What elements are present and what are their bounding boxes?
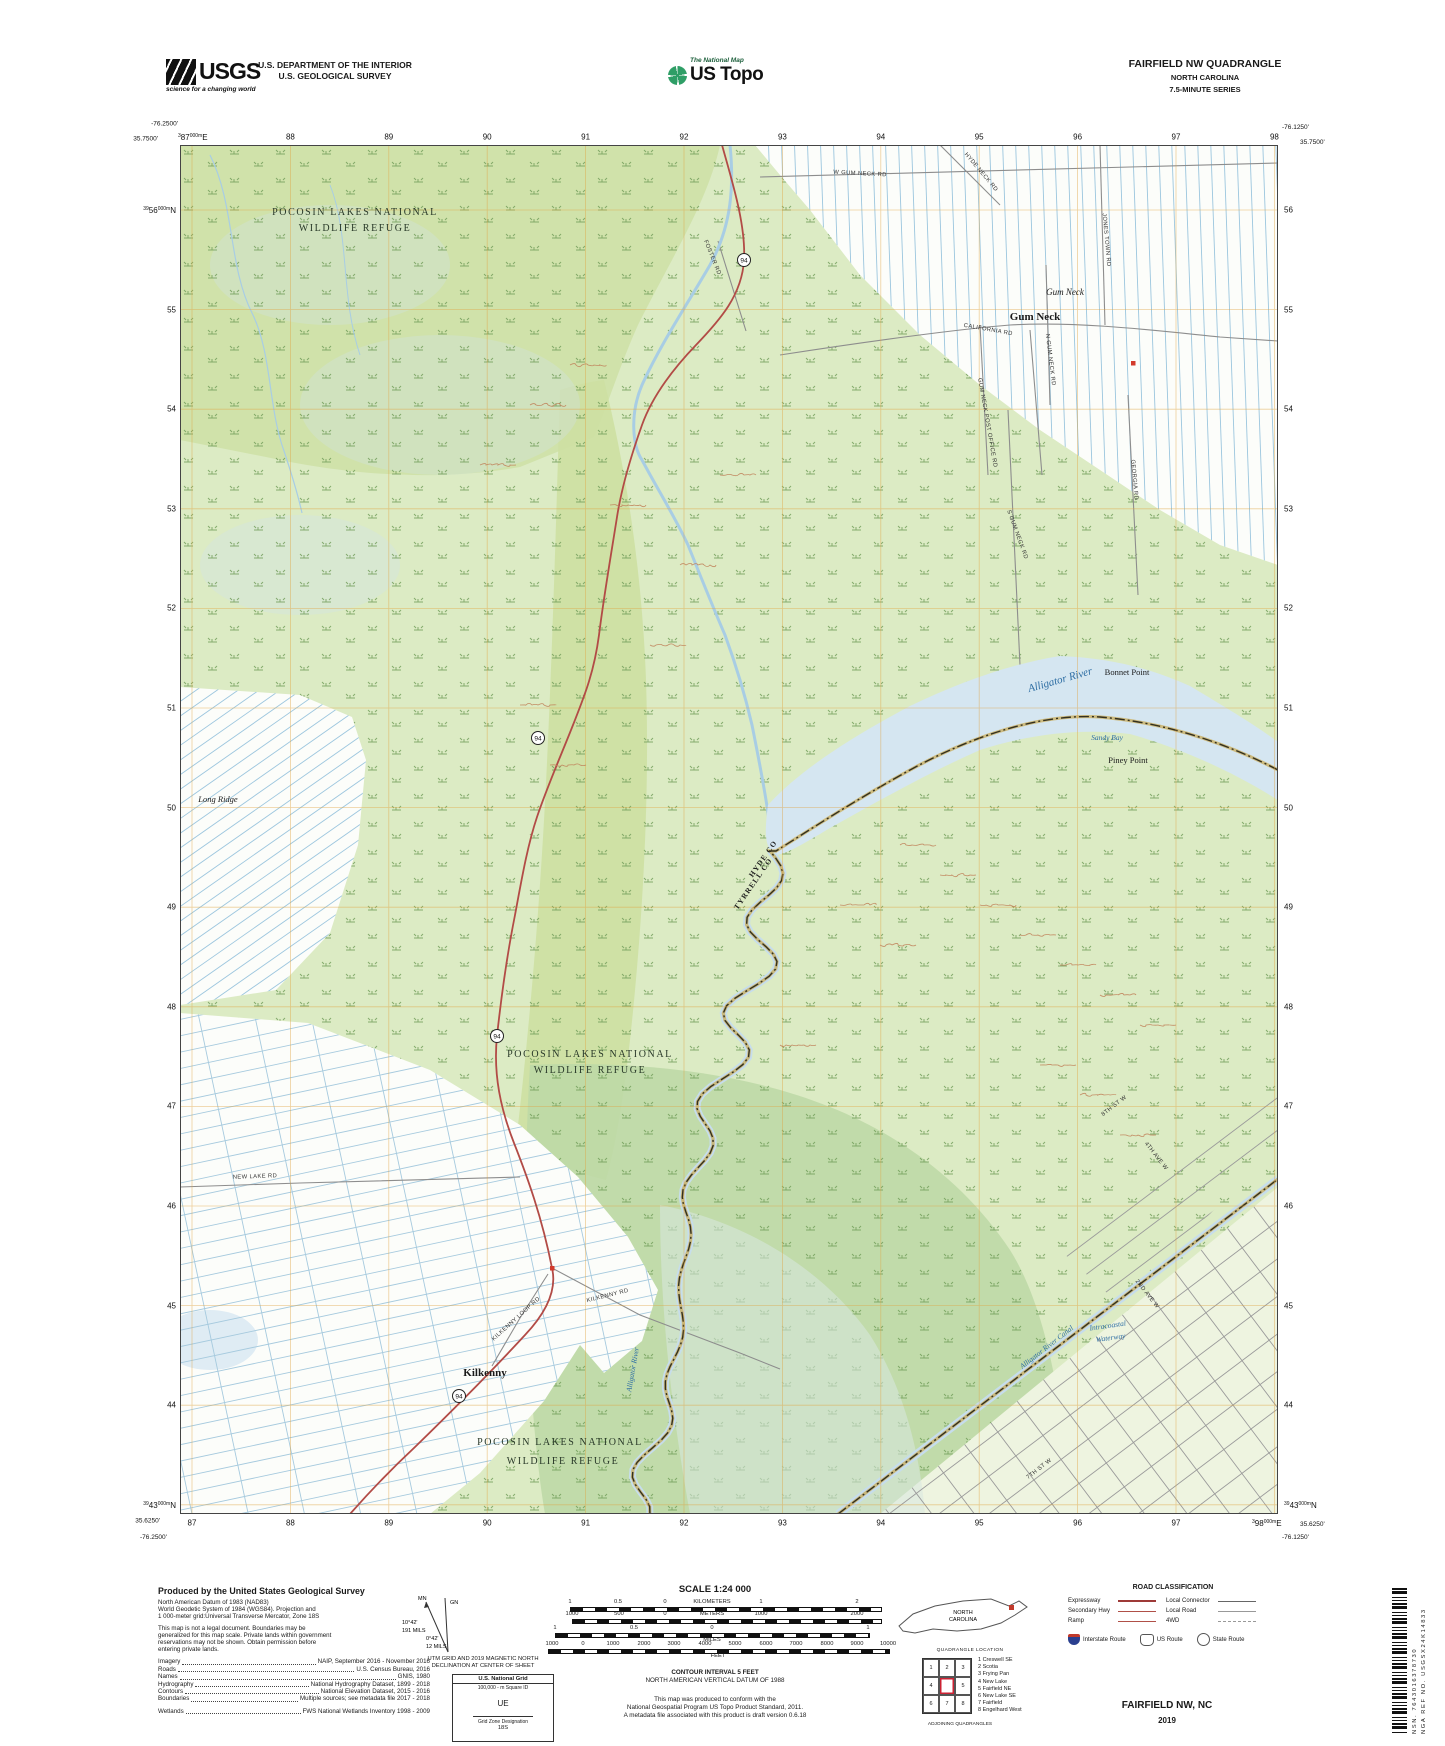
usgs-topo-sheet: USGS science for a changing world U.S. D… — [0, 0, 1445, 1746]
grid-number-top: 92 — [680, 133, 689, 142]
adjoining-name: 1 Creswell SE — [978, 1657, 1022, 1664]
scale-title: SCALE 1:24 000 — [560, 1584, 870, 1595]
map-label: Kilkenny — [463, 1367, 507, 1379]
adjoining-names: 1 Creswell SE2 Scotia3 Frying Pan4 New L… — [978, 1657, 1022, 1715]
grid-number-right: 44 — [1284, 1401, 1293, 1410]
department-heading: U.S. DEPARTMENT OF THE INTERIOR U.S. GEO… — [250, 60, 420, 82]
grid-number-left: 48 — [167, 1002, 176, 1011]
grid-label-3943000mN-right: 3943000mN — [1284, 1501, 1317, 1510]
source-row: ContoursNational Elevation Dataset, 2015… — [158, 1688, 430, 1695]
svg-text:MN: MN — [418, 1596, 427, 1602]
sheet-year: 2019 — [1087, 1716, 1247, 1725]
adjoining-caption: ADJOINING QUADRANGLES — [900, 1722, 1020, 1727]
roadclass-row: ExpresswayLocal Connector — [1068, 1596, 1278, 1606]
grid-number-right: 56 — [1284, 206, 1293, 215]
scale-tick: 1000 — [566, 1611, 579, 1617]
map-label: Sandy Bay — [1091, 733, 1124, 742]
grid-number-bottom: 94 — [876, 1519, 885, 1528]
grid-number-right: 55 — [1284, 305, 1293, 314]
grid-number-bottom: 87 — [188, 1519, 197, 1528]
grid-number-right: 54 — [1284, 405, 1293, 414]
grid-label-3956000mN: 3956000mN — [143, 206, 176, 215]
source-row: HydrographyNational Hydrography Dataset,… — [158, 1681, 430, 1688]
route-shield: 94 — [493, 1033, 501, 1040]
adjoining-cell: 6 — [923, 1695, 939, 1713]
usgs-wave-icon — [166, 59, 196, 85]
scale-tick: 0 — [581, 1641, 584, 1647]
adjoining-name: 4 New Lake — [978, 1679, 1022, 1686]
state-locator: NORTH CAROLINA — [893, 1596, 1043, 1646]
adjoining-name: 2 Scotia — [978, 1664, 1022, 1671]
legal-line: reservations may not be shown. Obtain pe… — [158, 1639, 430, 1646]
adjoining-cell: 1 — [923, 1659, 939, 1677]
scale-tick: 2 — [855, 1599, 858, 1605]
corner-lon-bl: -76.2500' — [140, 1534, 167, 1541]
corner-lat-br: 35.6250' — [1300, 1521, 1325, 1528]
adjoining-name: 8 Engelhard West — [978, 1707, 1022, 1714]
grid-number-left: 52 — [167, 604, 176, 613]
adjoining-cell: 4 — [923, 1677, 939, 1695]
map-label: Bonnet Point — [1105, 667, 1150, 677]
corner-lon-br: -76.1250' — [1282, 1534, 1309, 1541]
sheet-name: FAIRFIELD NW, NC — [1087, 1700, 1247, 1711]
scale-tick: 1000 — [546, 1641, 559, 1647]
production-credits: Produced by the United States Geological… — [158, 1586, 430, 1715]
roadclass-row: Ramp4WD — [1068, 1616, 1278, 1626]
grid-number-bottom: 90 — [483, 1519, 492, 1528]
datum-line: North American Datum of 1983 (NAD83) — [158, 1599, 430, 1606]
shield-legend-state: State Route — [1197, 1633, 1245, 1646]
quad-state: NORTH CAROLINA — [1040, 73, 1370, 82]
legal-line: entering private lands. — [158, 1646, 430, 1653]
corner-lat-bl: 35.6250' — [135, 1518, 160, 1525]
scale-tick: 3000 — [668, 1641, 681, 1647]
map-label: Long Ridge — [197, 794, 238, 804]
grid-number-left: 47 — [167, 1102, 176, 1111]
map-label: WILDLIFE REFUGE — [299, 223, 412, 234]
adjoining-cell: 5 — [955, 1677, 971, 1695]
roadclass-row: Secondary HwyLocal Road — [1068, 1606, 1278, 1616]
scale-tick: 1 — [568, 1599, 571, 1605]
grid-label-398000mE: 398000mE — [1252, 1519, 1282, 1528]
conform-line: This map was produced to conform with th… — [560, 1696, 870, 1704]
grid-number-right: 45 — [1284, 1301, 1293, 1310]
grid-number-bottom: 91 — [581, 1519, 590, 1528]
scale-tick: 7000 — [790, 1641, 803, 1647]
grid-number-left: 53 — [167, 504, 176, 513]
scale-tick: 2000 — [638, 1641, 651, 1647]
scale-bar — [572, 1619, 882, 1624]
grid-number-left: 45 — [167, 1301, 176, 1310]
scale-tick: 500 — [614, 1611, 624, 1617]
dept-line2: U.S. GEOLOGICAL SURVEY — [250, 71, 420, 82]
map-label: WILDLIFE REFUGE — [534, 1065, 647, 1076]
legal-line: generalized for this map scale. Private … — [158, 1632, 430, 1639]
grid-number-left: 50 — [167, 803, 176, 812]
scale-tick: 1 — [759, 1599, 762, 1605]
adjoining-name: 7 Fairfield — [978, 1700, 1022, 1707]
building — [550, 1266, 555, 1271]
grid-label-387000mE: 387000mE — [178, 133, 208, 142]
source-row: BoundariesMultiple sources; see metadata… — [158, 1695, 430, 1702]
legal-line: This map is not a legal document. Bounda… — [158, 1625, 430, 1632]
svg-text:10°42': 10°42' — [402, 1620, 418, 1626]
adjoining-cell: 7 — [939, 1695, 955, 1713]
adjoining-cell: 8 — [955, 1695, 971, 1713]
grid-number-top: 89 — [384, 133, 393, 142]
grid-number-left: 54 — [167, 405, 176, 414]
quad-name: FAIRFIELD NW QUADRANGLE — [1040, 58, 1370, 70]
route-shield: 94 — [534, 735, 542, 742]
grid-label-3943000mN-left: 3943000mN — [143, 1501, 176, 1510]
ustopo-label: US Topo — [690, 64, 763, 86]
map-label: WILDLIFE REFUGE — [507, 1456, 620, 1467]
sheet-imprint: FAIRFIELD NW, NC 2019 — [1087, 1700, 1247, 1725]
grid-number-top: 91 — [581, 133, 590, 142]
shield-legend-interstate: Interstate Route — [1068, 1634, 1126, 1645]
usng-box: U.S. National Grid 100,000 - m Square ID… — [452, 1674, 554, 1742]
svg-text:12 MILS: 12 MILS — [426, 1644, 447, 1650]
quad-location-dot — [1009, 1605, 1014, 1610]
scale-tick: 1 — [866, 1625, 869, 1631]
route-shield: 94 — [740, 257, 748, 264]
corner-lon-tl: -76.2500' — [151, 121, 178, 128]
source-row: WetlandsFWS National Wetlands Inventory … — [158, 1708, 430, 1715]
svg-text:NORTH: NORTH — [953, 1610, 972, 1616]
conform-line: National Geospatial Program US Topo Prod… — [560, 1704, 870, 1712]
scale-tick: 8000 — [821, 1641, 834, 1647]
scale-tick: 9000 — [851, 1641, 864, 1647]
grid-number-bottom: 89 — [384, 1519, 393, 1528]
grid-number-bottom: 93 — [778, 1519, 787, 1528]
grid-number-bottom: 92 — [680, 1519, 689, 1528]
source-row: RoadsU.S. Census Bureau, 2016 — [158, 1666, 430, 1673]
scale-tick: 1000 — [607, 1641, 620, 1647]
grid-number-left: 44 — [167, 1401, 176, 1410]
grid-number-left: 49 — [167, 903, 176, 912]
grid-number-right: 51 — [1284, 704, 1293, 713]
conform-note: This map was produced to conform with th… — [560, 1696, 870, 1720]
corner-lat-tr: 35.7500' — [1300, 139, 1325, 146]
topo-map[interactable]: 94949494 POCOSIN LAKES NATIONALWILDLIFE … — [180, 145, 1278, 1514]
adjoining-cell-current — [939, 1677, 955, 1695]
dept-line1: U.S. DEPARTMENT OF THE INTERIOR — [250, 60, 420, 71]
grid-number-top: 97 — [1172, 133, 1181, 142]
us-shield-icon — [1140, 1634, 1154, 1646]
nga-ref: NGA REF NO. USGSX24K14833 — [1421, 1608, 1427, 1734]
datum-line: 1 000-meter grid:Universal Transverse Me… — [158, 1613, 430, 1620]
corner-lon-tr: -76.1250' — [1282, 124, 1309, 131]
grid-number-top: 93 — [778, 133, 787, 142]
declination-caption: UTM GRID AND 2019 MAGNETIC NORTH DECLINA… — [398, 1656, 568, 1670]
produced-by: Produced by the United States Geological… — [158, 1586, 430, 1596]
scale-tick: 0.5 — [614, 1599, 622, 1605]
grid-number-bottom: 88 — [286, 1519, 295, 1528]
quad-series: 7.5-MINUTE SERIES — [1040, 85, 1370, 94]
shield-legend-us: US Route — [1140, 1634, 1183, 1646]
svg-text:0°42': 0°42' — [426, 1636, 438, 1642]
grid-number-top: 96 — [1073, 133, 1082, 142]
scale-tick: 4000 — [699, 1641, 712, 1647]
grid-number-bottom: 97 — [1172, 1519, 1181, 1528]
svg-text:CAROLINA: CAROLINA — [949, 1617, 977, 1623]
grid-number-right: 47 — [1284, 1102, 1293, 1111]
grid-number-right: 48 — [1284, 1002, 1293, 1011]
grid-number-right: 52 — [1284, 604, 1293, 613]
grid-number-top: 94 — [876, 133, 885, 142]
scale-tick: 5000 — [729, 1641, 742, 1647]
scale-tick: 0 — [710, 1625, 713, 1631]
grid-number-bottom: 96 — [1073, 1519, 1082, 1528]
map-label: POCOSIN LAKES NATIONAL — [477, 1437, 643, 1448]
scale-tick: 2000 — [851, 1611, 864, 1617]
grid-number-bottom: 95 — [975, 1519, 984, 1528]
map-label: Gum Neck — [1046, 287, 1085, 297]
scale-unit: KILOMETERS — [693, 1599, 730, 1605]
interstate-shield-icon — [1068, 1634, 1080, 1645]
grid-number-left: 46 — [167, 1202, 176, 1211]
grid-number-top: 90 — [483, 133, 492, 142]
svg-text:191 MILS: 191 MILS — [402, 1628, 426, 1634]
grid-number-top: 95 — [975, 133, 984, 142]
map-label: POCOSIN LAKES NATIONAL — [272, 207, 438, 218]
contour-note: CONTOUR INTERVAL 5 FEET NORTH AMERICAN V… — [560, 1669, 870, 1685]
datum-line: World Geodetic System of 1984 (WGS84). P… — [158, 1606, 430, 1613]
scale-tick: 1 — [553, 1625, 556, 1631]
corner-lat-tl: 35.7500' — [133, 136, 158, 143]
conform-line: A metadata file associated with this pro… — [560, 1712, 870, 1720]
adjoining-grid: 12345678 — [922, 1658, 972, 1714]
map-label: Gum Neck — [1010, 311, 1061, 323]
scale-tick: 1000 — [755, 1611, 768, 1617]
grid-number-right: 53 — [1284, 504, 1293, 513]
map-label: POCOSIN LAKES NATIONAL — [507, 1049, 673, 1060]
adjoining-cell: 3 — [955, 1659, 971, 1677]
grid-number-right: 49 — [1284, 903, 1293, 912]
source-row: ImageryNAIP, September 2016 - November 2… — [158, 1658, 430, 1665]
nsn-number: NSN. 7643016378730 — [1412, 1648, 1418, 1734]
building — [1131, 361, 1136, 366]
scale-unit: FEET — [711, 1653, 726, 1659]
adjoining-name: 6 New Lake SE — [978, 1693, 1022, 1700]
declination-diagram: MN GN 10°42' 191 MILS 0°42' 12 MILS — [396, 1590, 566, 1656]
scale-tick: 0 — [663, 1611, 666, 1617]
scale-unit: METERS — [700, 1611, 724, 1617]
adjoining-name: 5 Fairfield NE — [978, 1686, 1022, 1693]
grid-number-top: 88 — [286, 133, 295, 142]
source-row: NamesGNIS, 1980 — [158, 1673, 430, 1680]
map-label: Piney Point — [1108, 755, 1148, 765]
route-shield: 94 — [455, 1393, 463, 1400]
grid-number-top: 98 — [1270, 133, 1279, 142]
national-map-label: The National Map — [690, 57, 763, 64]
ustopo-icon — [668, 66, 687, 85]
barcode — [1392, 1588, 1407, 1734]
state-shield-icon — [1197, 1633, 1210, 1646]
grid-number-right: 46 — [1284, 1202, 1293, 1211]
quadrangle-title: FAIRFIELD NW QUADRANGLE NORTH CAROLINA 7… — [1040, 58, 1370, 94]
scale-tick: 0.5 — [630, 1625, 638, 1631]
quadrangle-location-caption: QUADRANGLE LOCATION — [905, 1648, 1035, 1653]
svg-text:GN: GN — [450, 1600, 458, 1606]
grid-number-right: 50 — [1284, 803, 1293, 812]
scale-tick: 0 — [663, 1599, 666, 1605]
usgs-tagline: science for a changing world — [166, 86, 276, 93]
grid-number-left: 51 — [167, 704, 176, 713]
adjoining-cell: 2 — [939, 1659, 955, 1677]
ustopo-logo: The National Map US Topo — [668, 57, 763, 86]
adjoining-name: 3 Frying Pan — [978, 1671, 1022, 1678]
scale-tick: 6000 — [760, 1641, 773, 1647]
road-classification: ROAD CLASSIFICATION ExpresswayLocal Conn… — [1068, 1584, 1278, 1646]
grid-number-left: 55 — [167, 305, 176, 314]
